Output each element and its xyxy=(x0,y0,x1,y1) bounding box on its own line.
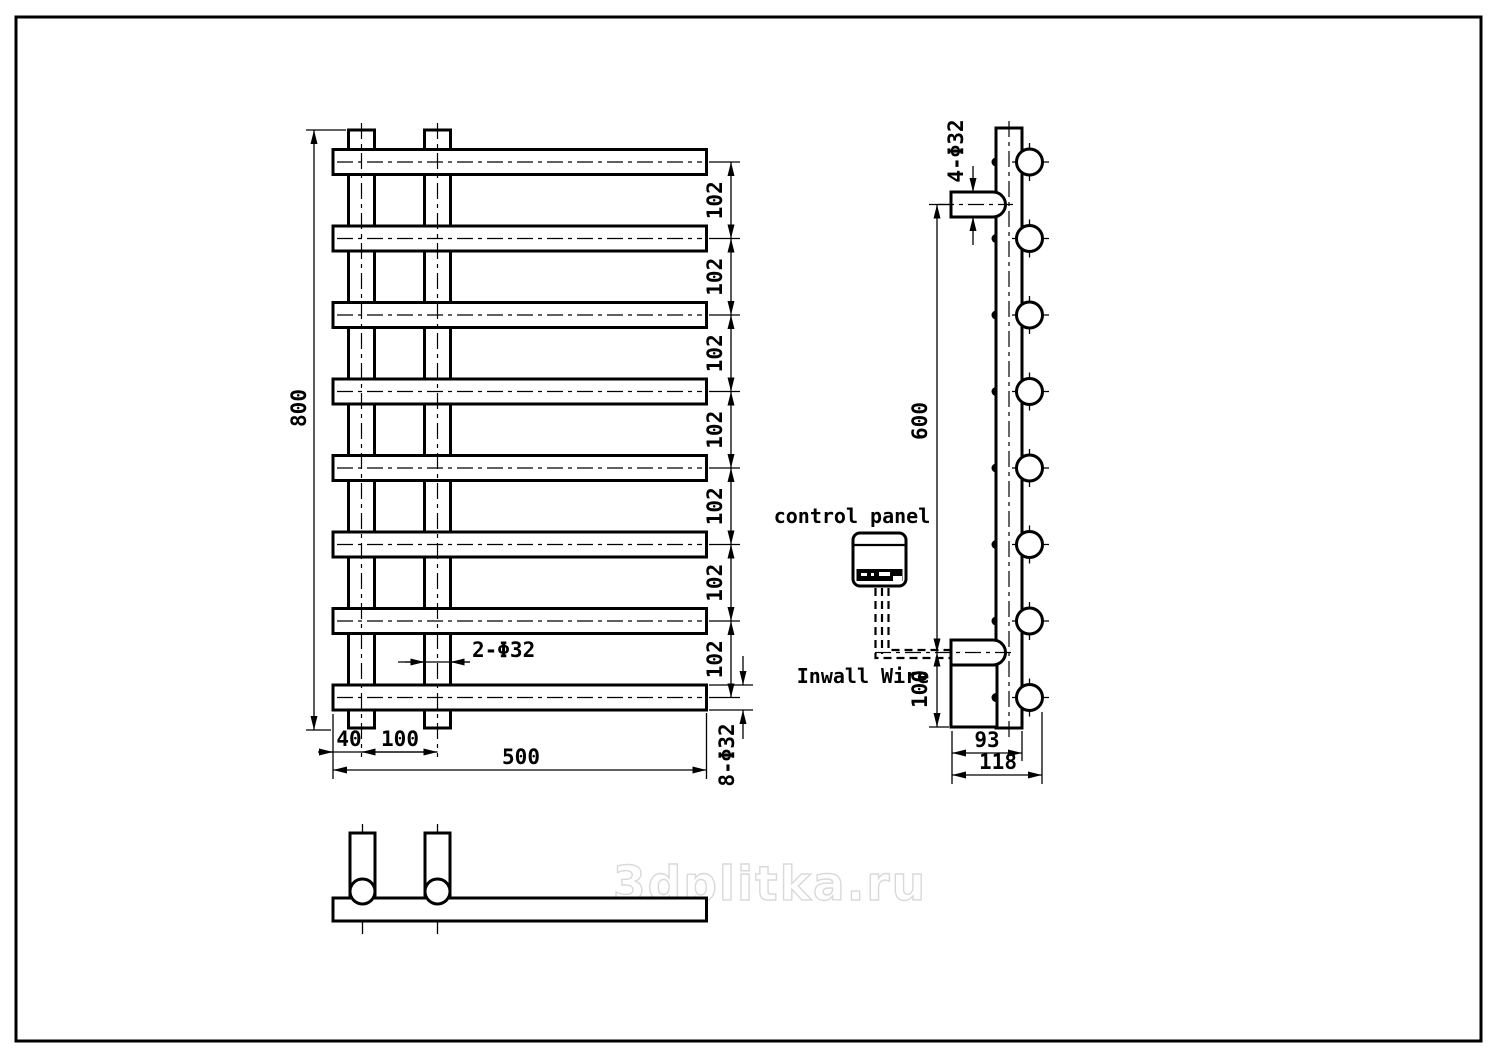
dim-body-depth-label: 93 xyxy=(974,728,999,752)
dimension-bracket-span: 600 xyxy=(908,205,949,653)
dim-post-spacing-label: 100 xyxy=(381,727,419,751)
side-view: 4-Φ32 600 100 93 118 control panel xyxy=(774,119,1049,784)
dimension-height: 800 xyxy=(287,130,346,730)
dim-spacing-label-2: 102 xyxy=(703,258,727,296)
callout-bar-diameter-label: 8-Φ32 xyxy=(715,723,739,786)
dim-spacing-label-5: 102 xyxy=(703,487,727,525)
callout-bracket-diameter-label: 4-Φ32 xyxy=(944,119,968,182)
top-view-bar xyxy=(333,898,707,921)
dim-overall-depth-label: 118 xyxy=(979,750,1017,774)
dim-spacing-label-4: 102 xyxy=(703,411,727,449)
dim-spacing-label-6: 102 xyxy=(703,564,727,602)
inwall-wire-dashed xyxy=(876,588,952,658)
dim-spacing-label-7: 102 xyxy=(703,640,727,678)
dimension-spacing-chain: 102 102 102 102 102 102 102 xyxy=(703,162,740,698)
front-view: 800 102 102 102 102 102 102 102 xyxy=(287,123,753,787)
technical-drawing: 3dplitka.ru xyxy=(0,0,1497,1058)
towel-bars xyxy=(333,150,707,711)
dim-spacing-label-1: 102 xyxy=(703,181,727,219)
callout-post-diameter: 2-Φ32 xyxy=(398,638,535,662)
inwall-wire: Inwall Wire xyxy=(797,588,951,688)
top-view-post-end-circle xyxy=(350,879,375,904)
dim-spacing-label-3: 102 xyxy=(703,334,727,372)
dim-height-label: 800 xyxy=(287,389,311,427)
callout-bracket-diameter: 4-Φ32 xyxy=(944,119,973,245)
dimension-bottom: 40 100 500 xyxy=(318,713,707,779)
callout-post-diameter-label: 2-Φ32 xyxy=(472,638,535,662)
heater-housing xyxy=(951,665,997,727)
control-panel-label: control panel xyxy=(774,504,931,528)
dim-width-label: 500 xyxy=(502,745,540,769)
dim-bracket-span-label: 600 xyxy=(908,402,932,440)
inwall-wire-label: Inwall Wire xyxy=(797,664,929,688)
inwall-wire-dashed xyxy=(889,588,952,650)
dim-post-offset-label: 40 xyxy=(336,727,361,751)
top-view-post-end-circle xyxy=(425,879,450,904)
technical-drawing-page: 3dplitka.ru xyxy=(0,0,1497,1058)
control-panel: control panel xyxy=(774,504,931,586)
